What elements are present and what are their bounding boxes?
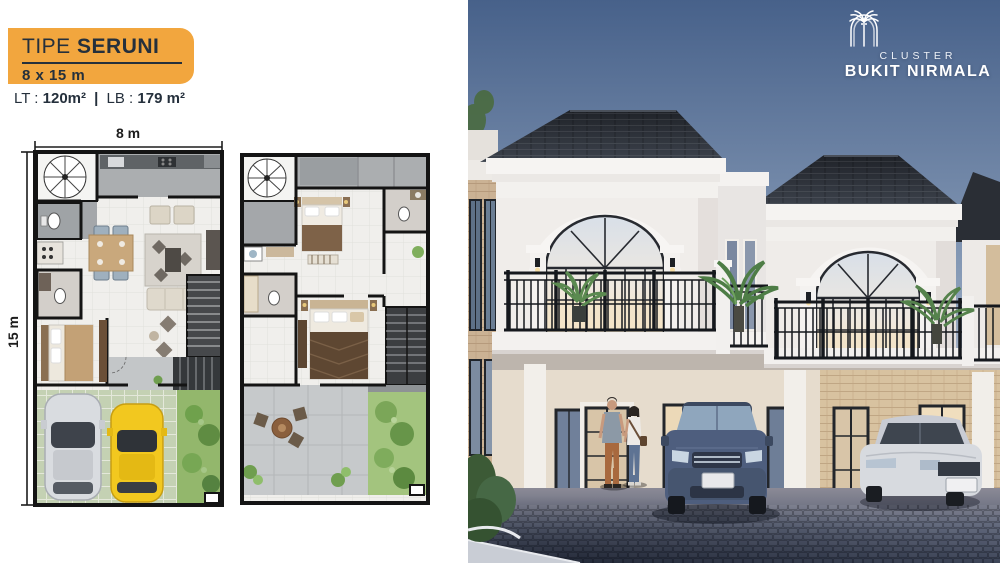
width-label: 8 m bbox=[116, 125, 140, 141]
sink bbox=[108, 157, 124, 167]
bathroom bbox=[37, 270, 81, 318]
master-bedroom bbox=[298, 300, 377, 379]
railing-pier bbox=[716, 264, 730, 354]
palm-tree-arch-icon bbox=[843, 8, 885, 48]
floorplan-panel: TIPE SERUNI 8 x 15 m LT : 120m² | LB : 1… bbox=[0, 0, 468, 563]
wall-lamp bbox=[535, 258, 540, 267]
unit2-facade bbox=[756, 204, 962, 365]
terrace bbox=[242, 385, 368, 495]
wall-lamp bbox=[806, 292, 811, 301]
plot-size: 8 x 15 m bbox=[22, 67, 184, 84]
tv-console bbox=[298, 320, 307, 368]
dimension-width: 8 m bbox=[35, 125, 222, 153]
logo-line1: CLUSTER bbox=[843, 50, 993, 62]
lb-label: LB : bbox=[107, 90, 134, 107]
spiral-staircase-2 bbox=[242, 155, 296, 201]
gate-marker-2 bbox=[410, 485, 424, 495]
type-name: SERUNI bbox=[77, 35, 159, 58]
yellow-car bbox=[107, 404, 167, 502]
bathroom-2 bbox=[384, 188, 428, 232]
carport bbox=[35, 390, 177, 503]
license-plate bbox=[702, 473, 734, 488]
lt-label: LT : bbox=[14, 90, 38, 107]
wall-lamp bbox=[670, 258, 675, 267]
stairs-2 bbox=[386, 307, 428, 385]
coffee-table bbox=[165, 248, 181, 272]
banner-divider bbox=[22, 62, 182, 64]
license-plate bbox=[946, 478, 977, 492]
wardrobe bbox=[99, 320, 107, 382]
kitchen-counter bbox=[37, 242, 63, 264]
brochure-canvas: TIPE SERUNI 8 x 15 m LT : 120m² | LB : 1… bbox=[0, 0, 1000, 563]
floorplan-upper bbox=[234, 140, 434, 512]
house-render: CLUSTER BUKIT NIRMALA bbox=[468, 0, 1000, 563]
render-scene bbox=[468, 0, 1000, 563]
type-label: TIPE bbox=[22, 35, 71, 58]
fridge bbox=[204, 155, 220, 168]
wc bbox=[37, 203, 81, 239]
gate-marker bbox=[205, 493, 219, 503]
logo-line2: BUKIT NIRMALA bbox=[843, 63, 993, 81]
stove bbox=[158, 157, 176, 167]
height-label: 15 m bbox=[8, 316, 21, 348]
area-separator: | bbox=[90, 90, 102, 107]
garden bbox=[177, 390, 222, 503]
silver-car bbox=[41, 394, 105, 500]
cabinet bbox=[206, 230, 220, 270]
spiral-staircase bbox=[37, 153, 97, 201]
floorplan-ground: 8 m 15 m bbox=[8, 122, 230, 522]
balcony-plant bbox=[412, 246, 424, 258]
lb-value: 179 m² bbox=[137, 90, 185, 107]
type-banner: TIPE SERUNI 8 x 15 m bbox=[8, 28, 194, 84]
area-info: LT : 120m² | LB : 179 m² bbox=[14, 90, 185, 107]
lt-value: 120m² bbox=[43, 90, 86, 107]
type-title: TIPE SERUNI bbox=[22, 35, 184, 59]
dimension-height: 15 m bbox=[8, 152, 33, 505]
railing-pier bbox=[962, 296, 974, 366]
cluster-logo: CLUSTER BUKIT NIRMALA bbox=[843, 8, 993, 81]
bathroom-3 bbox=[242, 274, 296, 316]
garden-2 bbox=[368, 385, 428, 495]
